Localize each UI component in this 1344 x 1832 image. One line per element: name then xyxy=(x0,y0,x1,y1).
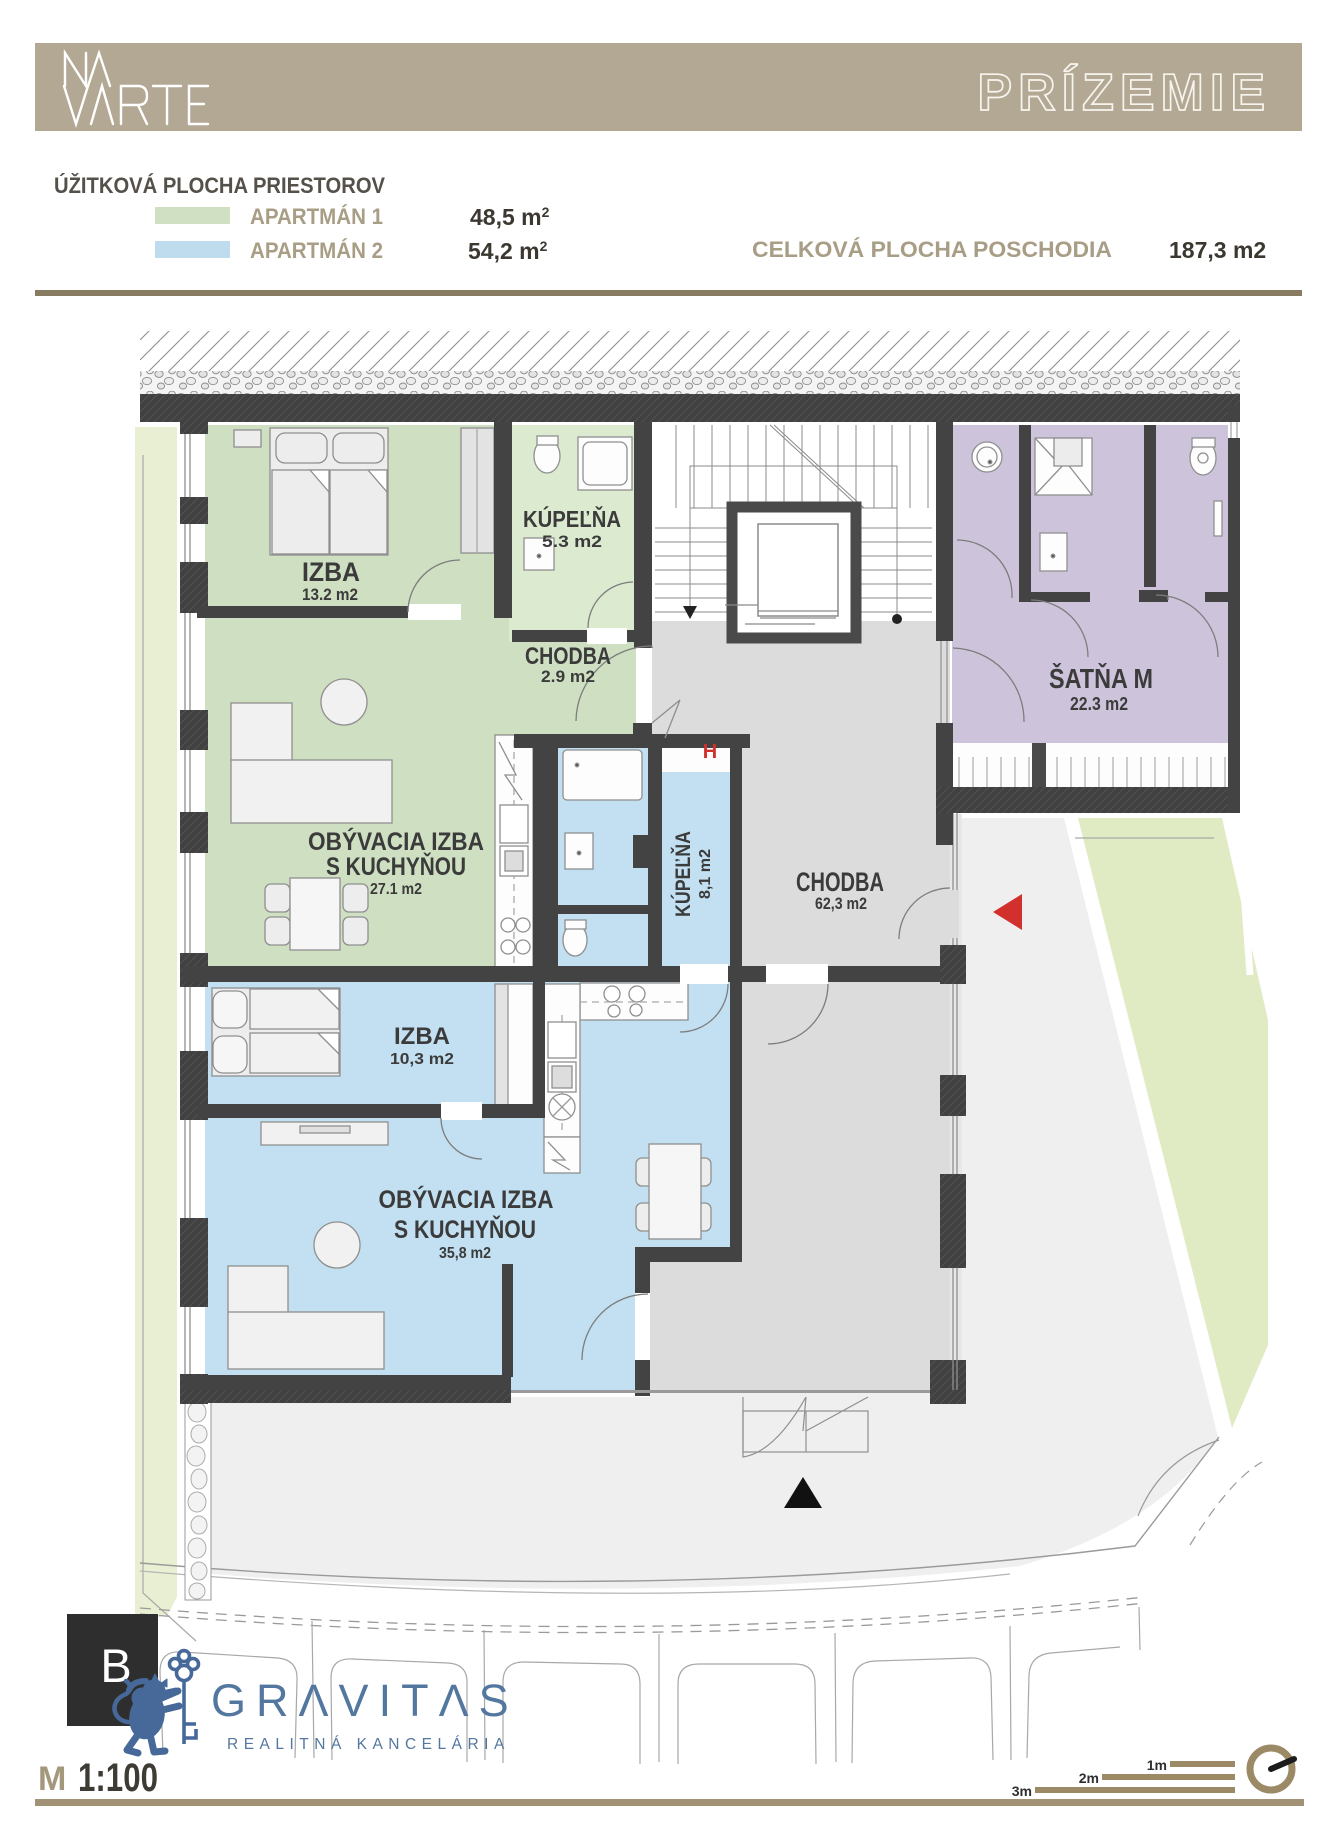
svg-text:M: M xyxy=(38,1760,66,1798)
svg-text:35,8 m2: 35,8 m2 xyxy=(439,1245,491,1262)
svg-text:IZBA: IZBA xyxy=(302,557,360,587)
svg-text:OBÝVACIA IZBA: OBÝVACIA IZBA xyxy=(308,826,484,856)
svg-text:62,3 m2: 62,3 m2 xyxy=(815,894,867,913)
svg-text:CELKOVÁ PLOCHA POSCHODIA: CELKOVÁ PLOCHA POSCHODIA xyxy=(752,237,1112,262)
svg-text:S KUCHYŇOU: S KUCHYŇOU xyxy=(394,1214,536,1244)
svg-text:2.9 m2: 2.9 m2 xyxy=(541,667,595,686)
svg-text:H: H xyxy=(703,741,717,763)
svg-text:187,3 m2: 187,3 m2 xyxy=(1169,237,1266,263)
svg-text:S KUCHYŇOU: S KUCHYŇOU xyxy=(326,851,466,881)
svg-text:1m: 1m xyxy=(1147,1757,1167,1773)
svg-text:3m: 3m xyxy=(1012,1783,1032,1799)
svg-text:KÚPEĽŇA: KÚPEĽŇA xyxy=(671,831,695,917)
svg-text:48,5 m2: 48,5 m2 xyxy=(470,204,550,230)
svg-text:IZBA: IZBA xyxy=(394,1023,450,1050)
svg-text:5.3 m2: 5.3 m2 xyxy=(542,532,602,551)
svg-text:GRΛVITΛS: GRΛVITΛS xyxy=(211,1675,519,1726)
svg-text:APARTMÁN 1: APARTMÁN 1 xyxy=(250,204,383,229)
svg-text:OBÝVACIA IZBA: OBÝVACIA IZBA xyxy=(379,1184,554,1214)
svg-text:CHODBA: CHODBA xyxy=(525,643,611,670)
svg-text:KÚPEĽŇA: KÚPEĽŇA xyxy=(523,505,621,532)
svg-text:1:100: 1:100 xyxy=(78,1756,158,1800)
svg-text:54,2 m2: 54,2 m2 xyxy=(468,238,548,264)
svg-text:CHODBA: CHODBA xyxy=(796,867,884,897)
svg-text:10,3 m2: 10,3 m2 xyxy=(390,1051,454,1068)
svg-text:2m: 2m xyxy=(1079,1770,1099,1786)
svg-text:ÚŽITKOVÁ PLOCHA PRIESTOROV: ÚŽITKOVÁ PLOCHA PRIESTOROV xyxy=(54,173,385,198)
svg-text:APARTMÁN 2: APARTMÁN 2 xyxy=(250,238,383,263)
svg-text:ŠATŇA M: ŠATŇA M xyxy=(1049,662,1153,694)
svg-text:27.1 m2: 27.1 m2 xyxy=(370,881,422,898)
svg-text:8,1 m2: 8,1 m2 xyxy=(697,849,714,899)
svg-text:13.2 m2: 13.2 m2 xyxy=(302,585,358,604)
svg-text:22.3 m2: 22.3 m2 xyxy=(1070,694,1128,714)
svg-text:REALITNÁ KANCELÁRIA: REALITNÁ KANCELÁRIA xyxy=(227,1736,510,1753)
svg-text:PRÍZEMIE: PRÍZEMIE xyxy=(977,64,1271,122)
